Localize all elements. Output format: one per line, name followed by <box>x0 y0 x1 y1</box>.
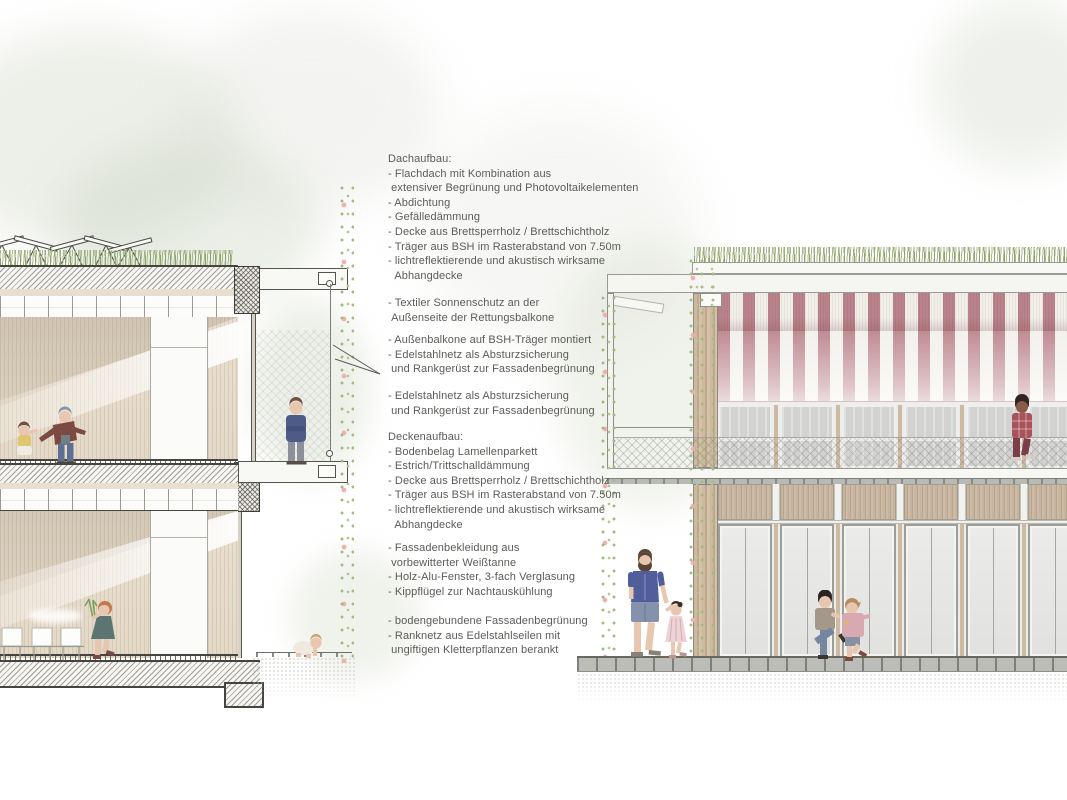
facade-post <box>896 484 904 520</box>
slat-band-row <box>718 484 1067 520</box>
note-sonnenschutz: - Textiler Sonnenschutz an der Außenseit… <box>388 296 666 325</box>
glass-door <box>966 524 1020 658</box>
wood-slat-segment <box>780 484 834 520</box>
wood-slat-segment <box>718 484 772 520</box>
chairs-row <box>0 624 84 662</box>
wood-slat-segment <box>842 484 896 520</box>
architectural-sheet: Dachaufbau: - Flachdach mit Kombination … <box>0 0 1067 800</box>
facade-post <box>958 484 966 520</box>
note-deckenaufbau: Deckenaufbau: - Bodenbelag Lamellenparke… <box>388 430 666 532</box>
railing-fitting <box>326 450 333 457</box>
wood-slat-segment <box>904 484 958 520</box>
green-roof-elevation <box>694 247 1067 263</box>
ground-slab <box>0 660 260 688</box>
roof-fascia <box>607 274 1067 293</box>
facade-post <box>1020 484 1028 520</box>
glass-door <box>1028 524 1067 658</box>
lamp-glow <box>28 609 82 623</box>
facade-post <box>1020 524 1028 658</box>
glass-doors-row <box>718 524 1067 658</box>
figure-child-plaid <box>1002 394 1042 470</box>
ground-texture <box>577 669 1067 704</box>
balcony-floor-bracket <box>318 465 336 478</box>
wood-slat-segment <box>1028 484 1067 520</box>
climbing-vine <box>339 185 354 663</box>
note-begruenung: - bodengebundene Fassadenbegrünung - Ran… <box>388 614 666 658</box>
facade-post <box>772 484 780 520</box>
lower-door-opening <box>150 511 208 658</box>
facade-post <box>772 524 780 658</box>
leader-lines <box>300 330 392 382</box>
note-dachaufbau: Dachaufbau: - Flachdach mit Kombination … <box>388 152 666 283</box>
figure-crawling-child <box>286 629 324 659</box>
railing-net <box>613 437 1067 469</box>
figure-caregiver-and-toddler <box>8 404 94 466</box>
green-roof-section <box>0 250 233 265</box>
figure-running-girl <box>832 596 874 664</box>
note-fassade: - Fassadenbekleidung aus vorbewitterter … <box>388 541 666 599</box>
awning-skirt <box>718 331 1067 402</box>
note-aussenbalkone: - Außenbalkone auf BSH-Träger montiert -… <box>388 333 666 377</box>
awning-top-drop <box>718 293 1067 331</box>
note-edelstahlnetz: - Edelstahlnetz als Absturzsicherung und… <box>388 389 666 418</box>
glass-door <box>718 524 772 658</box>
balcony-slab <box>607 468 1067 484</box>
cross-section-drawing <box>0 0 360 800</box>
figure-girl-with-leeks <box>80 597 124 665</box>
suspended-ceiling-lower <box>0 489 238 512</box>
ground-texture <box>252 657 356 701</box>
figure-boy-on-balcony <box>278 396 314 466</box>
suspended-ceiling-upper <box>0 296 238 319</box>
facade-post <box>958 524 966 658</box>
roof-parapet <box>692 262 1067 274</box>
upper-door-opening <box>150 317 208 461</box>
facade-post <box>834 484 842 520</box>
glass-door <box>904 524 958 658</box>
cut-column-upper <box>234 266 260 314</box>
facade-post <box>896 524 904 658</box>
wood-slat-segment <box>966 484 1020 520</box>
